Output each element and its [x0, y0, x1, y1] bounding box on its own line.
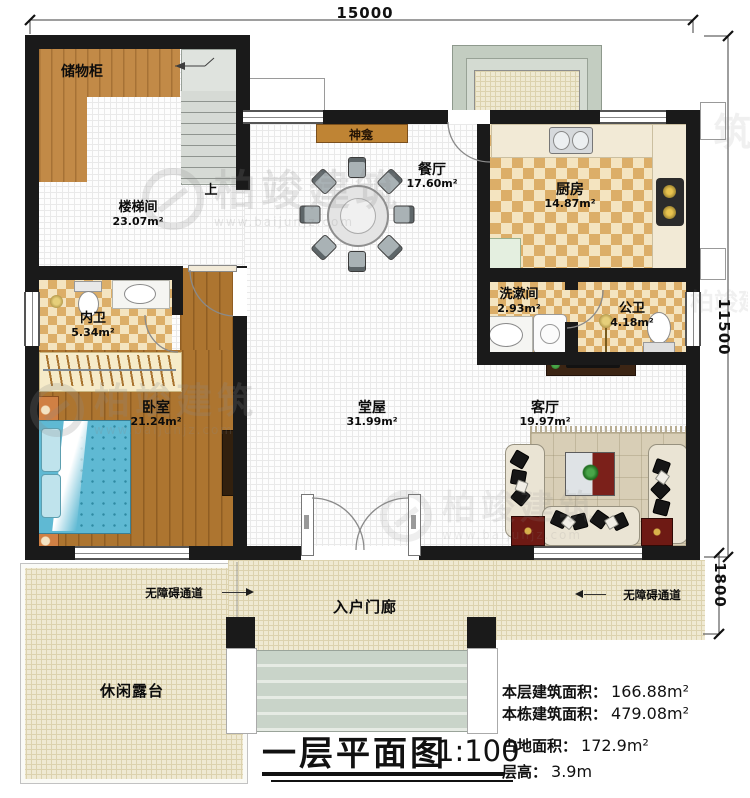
kitchen-name: 厨房 — [520, 182, 620, 198]
dining-area: 17.60m² — [382, 178, 482, 190]
stat-storey-height: 层高：3.9m — [502, 761, 592, 782]
hall-area: 31.99m² — [322, 416, 422, 428]
stat-building-area-value: 479.08m² — [611, 704, 689, 723]
stat-storey-height-label: 层高： — [502, 763, 547, 781]
stat-floor-area-value: 166.88m² — [611, 682, 689, 701]
stat-floor-area-label: 本层建筑面积： — [502, 683, 607, 701]
stat-building-area: 本栋建筑面积：479.08m² — [502, 703, 689, 724]
label-inner-bath: 内卫 5.34m² — [43, 312, 143, 339]
stat-footprint-area: 占地面积：172.9m² — [502, 735, 649, 756]
watermark-edge-vertical: 柏竣建筑 — [702, 112, 750, 262]
stairwell-area: 23.07m² — [88, 216, 188, 228]
dimension-right: 11500 — [715, 297, 733, 357]
storage-name: 储物柜 — [32, 64, 132, 80]
label-washroom: 洗漱间 2.93m² — [469, 288, 569, 315]
label-accessible-left: 无障碍通道 — [128, 585, 220, 601]
label-storage: 储物柜 — [32, 64, 132, 80]
label-stairwell: 楼梯间 23.07m² — [88, 201, 188, 228]
label-shrine: 神龛 — [316, 126, 406, 143]
stat-building-area-label: 本栋建筑面积： — [502, 705, 607, 723]
bedroom-area: 21.24m² — [106, 416, 206, 428]
inner-bath-area: 5.34m² — [43, 327, 143, 339]
label-bedroom: 卧室 21.24m² — [106, 400, 206, 428]
accessible-arrow-line-left — [222, 592, 246, 593]
floor-plan-canvas: 柏竣建筑 www.baijunjz.com 柏竣建筑 www.baijunjz.… — [0, 0, 750, 798]
stat-footprint-area-value: 172.9m² — [581, 736, 649, 755]
door-swings-and-dimension-lines — [0, 0, 750, 798]
living-area: 19.97m² — [495, 416, 595, 428]
hall-name: 堂屋 — [322, 400, 422, 416]
inner-bath-name: 内卫 — [43, 312, 143, 327]
living-name: 客厅 — [495, 400, 595, 416]
accessible-arrow-right — [575, 590, 583, 598]
label-public-bath: 公卫 4.18m² — [582, 302, 682, 329]
stat-storey-height-value: 3.9m — [551, 762, 592, 781]
stat-floor-area: 本层建筑面积：166.88m² — [502, 681, 689, 702]
kitchen-area: 14.87m² — [520, 198, 620, 210]
public-bath-area: 4.18m² — [582, 317, 682, 329]
label-accessible-right: 无障碍通道 — [606, 587, 698, 603]
dimension-porch-depth: 1800 — [711, 562, 729, 608]
page-title: 一层平面图 — [262, 726, 447, 775]
title-underline-thin — [271, 780, 513, 782]
stat-footprint-area-label: 占地面积： — [502, 737, 577, 755]
dimension-top: 15000 — [335, 4, 395, 22]
bedroom-name: 卧室 — [106, 400, 206, 416]
label-living: 客厅 19.97m² — [495, 400, 595, 428]
label-dining: 餐厅 17.60m² — [382, 162, 482, 190]
title-underline-thick — [262, 772, 504, 776]
label-kitchen: 厨房 14.87m² — [520, 182, 620, 210]
washroom-name: 洗漱间 — [469, 288, 569, 303]
public-bath-name: 公卫 — [582, 302, 682, 317]
washroom-area: 2.93m² — [469, 303, 569, 315]
stairwell-name: 楼梯间 — [88, 201, 188, 216]
label-entry-porch: 入户门廊 — [305, 596, 425, 617]
label-stairs-up: 上 — [201, 179, 221, 198]
label-hall: 堂屋 31.99m² — [322, 400, 422, 428]
accessible-arrow-left — [246, 588, 254, 596]
dining-name: 餐厅 — [382, 162, 482, 178]
accessible-arrow-line-right — [584, 594, 606, 595]
label-terrace: 休闲露台 — [72, 680, 192, 701]
